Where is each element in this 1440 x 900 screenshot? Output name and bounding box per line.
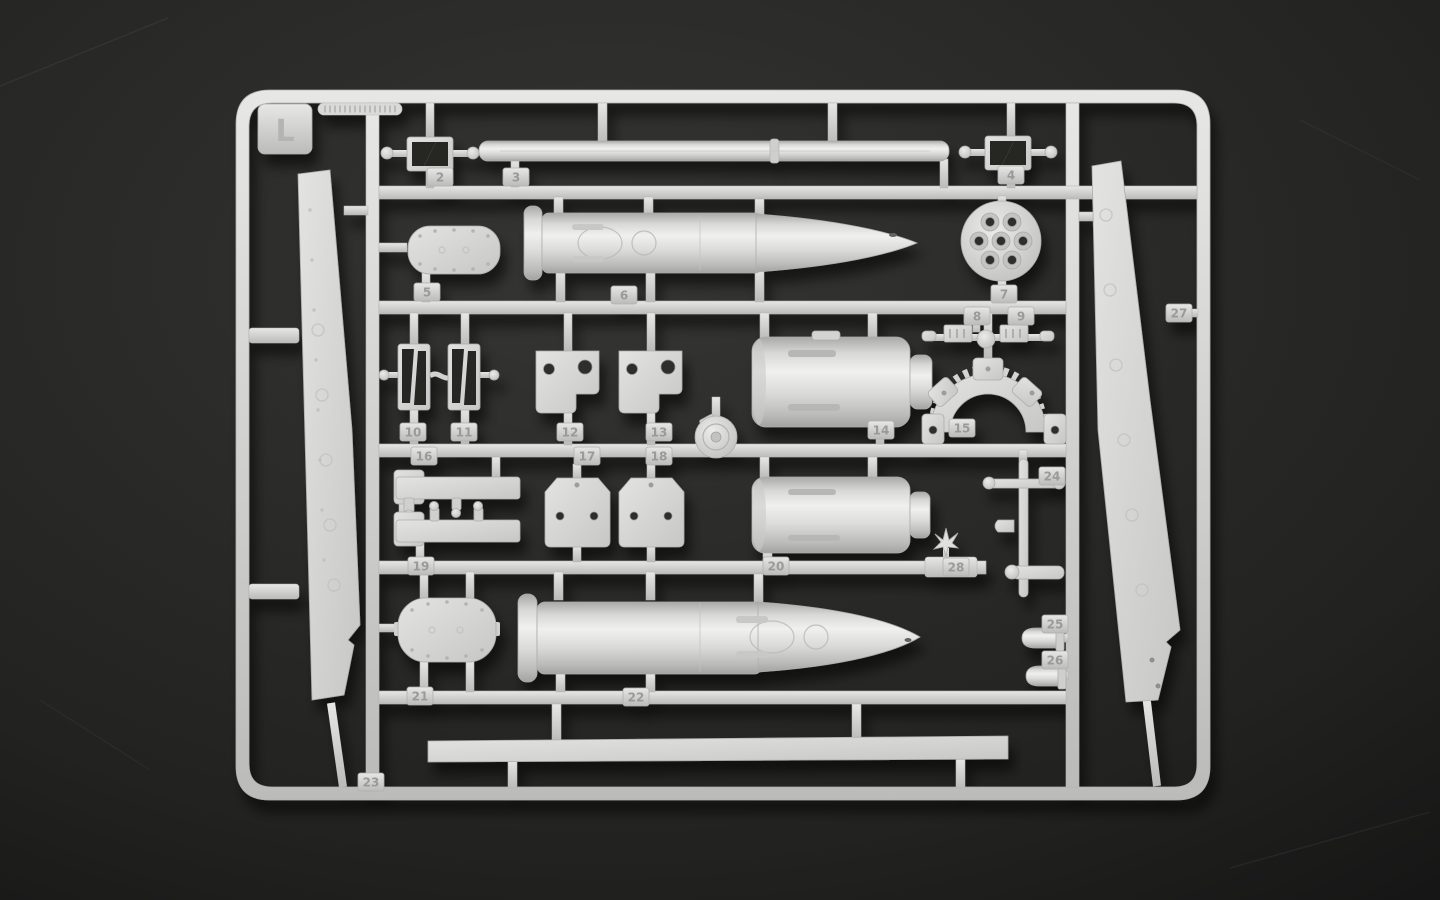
part-number-tag-14: 14 <box>868 421 894 439</box>
part-number-tag-24: 24 <box>1039 467 1065 485</box>
part-trapezoid-18 <box>619 478 684 547</box>
part-number-tag-7: 7 <box>991 285 1017 303</box>
part-number-tag-18: 18 <box>646 447 672 465</box>
svg-text:11: 11 <box>456 426 473 440</box>
svg-text:14: 14 <box>873 424 890 438</box>
svg-text:9: 9 <box>1017 310 1025 324</box>
svg-text:5: 5 <box>423 286 431 300</box>
part-trapezoid-17 <box>545 478 610 547</box>
part-number-tag-9: 9 <box>1008 307 1034 325</box>
part-number-tag-26: 26 <box>1042 651 1068 669</box>
embossed-mold-code <box>318 103 402 115</box>
svg-text:3: 3 <box>512 171 520 185</box>
part-number-tag-11: 11 <box>451 423 477 441</box>
part-number-tag-13: 13 <box>646 423 672 441</box>
part-cylinder-14 <box>752 331 932 427</box>
part-number-tag-16: 16 <box>411 447 437 465</box>
part-number-tag-19: 19 <box>408 557 434 575</box>
part-number-tag-25: 25 <box>1042 615 1068 633</box>
part-round-plate-7 <box>961 201 1041 281</box>
part-number-tag-5: 5 <box>414 283 440 301</box>
svg-text:24: 24 <box>1044 470 1061 484</box>
svg-text:13: 13 <box>651 426 668 440</box>
svg-text:8: 8 <box>973 310 981 324</box>
part-number-tag-22: 22 <box>623 688 649 706</box>
svg-text:20: 20 <box>768 560 785 574</box>
part-number-tag-3: 3 <box>503 168 529 186</box>
svg-text:21: 21 <box>412 690 429 704</box>
part-number-tag-8: 8 <box>964 307 990 325</box>
part-barrel-rod-3 <box>479 139 949 163</box>
part-number-tag-12: 12 <box>557 423 583 441</box>
part-strip-23 <box>428 736 1008 762</box>
sprue-letter: L <box>275 114 294 149</box>
part-number-tag-10: 10 <box>400 423 426 441</box>
part-cylinder-20 <box>752 477 930 553</box>
svg-text:7: 7 <box>1000 288 1008 302</box>
part-oval-plate-21 <box>394 598 500 662</box>
part-number-tag-15: 15 <box>949 419 975 437</box>
svg-text:28: 28 <box>948 561 965 575</box>
part-number-tag-4: 4 <box>998 166 1024 184</box>
svg-text:2: 2 <box>436 171 444 185</box>
svg-text:12: 12 <box>562 426 579 440</box>
svg-text:22: 22 <box>628 691 645 705</box>
part-number-tag-21: 21 <box>407 687 433 705</box>
part-number-tag-2: 2 <box>427 168 453 186</box>
svg-text:23: 23 <box>363 776 380 790</box>
sprue-letter-tab: L <box>258 104 312 154</box>
svg-text:4: 4 <box>1007 169 1015 183</box>
part-number-tag-17: 17 <box>574 447 600 465</box>
part-number-tag-28: 28 <box>943 558 969 576</box>
svg-text:25: 25 <box>1047 618 1064 632</box>
part-number-tag-20: 20 <box>763 557 789 575</box>
svg-text:17: 17 <box>579 450 596 464</box>
svg-text:26: 26 <box>1047 654 1064 668</box>
part-number-tag-27: 27 <box>1166 304 1192 322</box>
svg-text:19: 19 <box>413 560 430 574</box>
svg-text:27: 27 <box>1171 307 1188 321</box>
sprue-runner-L: L <box>236 90 1210 800</box>
sprue-photo: L <box>0 0 1440 900</box>
svg-text:15: 15 <box>954 422 971 436</box>
svg-text:10: 10 <box>405 426 422 440</box>
svg-text:16: 16 <box>416 450 433 464</box>
part-oval-plate-5 <box>408 226 500 274</box>
part-number-tag-6: 6 <box>611 286 637 304</box>
svg-text:18: 18 <box>651 450 668 464</box>
svg-text:6: 6 <box>620 289 628 303</box>
part-number-tag-23: 23 <box>358 773 384 791</box>
